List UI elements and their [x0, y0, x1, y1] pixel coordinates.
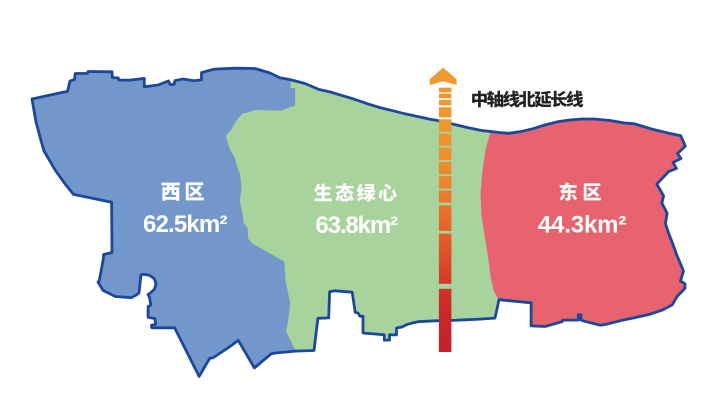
svg-text:63.8km²: 63.8km² — [315, 212, 398, 239]
svg-text:62.5km²: 62.5km² — [143, 211, 227, 238]
svg-text:44.3km²: 44.3km² — [538, 212, 626, 239]
